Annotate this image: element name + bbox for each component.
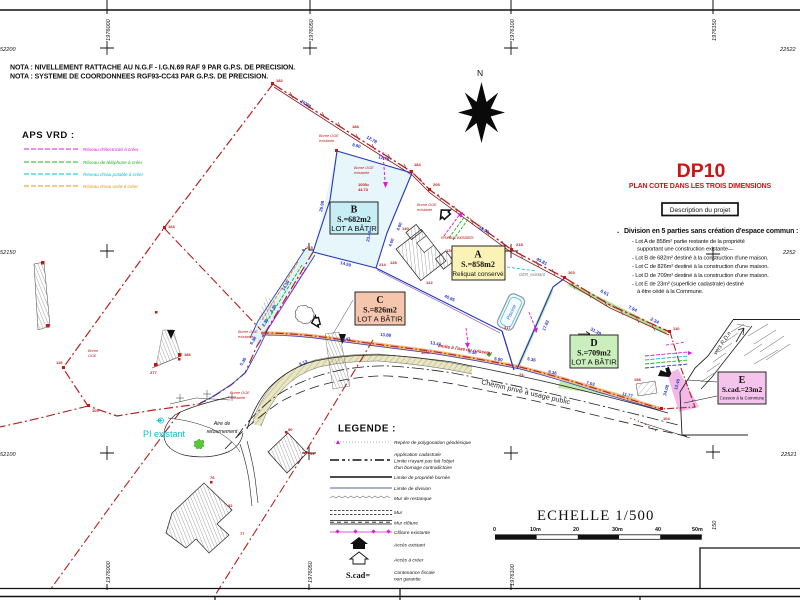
svg-text:Contenance fiscale: Contenance fiscale	[394, 570, 435, 576]
svg-text:1976000: 1976000	[106, 560, 112, 583]
svg-text:S.=858m2: S.=858m2	[461, 260, 495, 269]
svg-text:188: 188	[352, 124, 359, 129]
svg-text:existante: existante	[417, 208, 432, 212]
svg-text:Limite de propriété bornée: Limite de propriété bornée	[394, 475, 450, 481]
svg-text:93: 93	[310, 451, 315, 456]
svg-text:Application cadastrale: Application cadastrale	[393, 452, 441, 458]
svg-text:- Lot D de 709m² destiné à la: - Lot D de 709m² destiné à la constructi…	[632, 273, 769, 279]
svg-text:Accès existant: Accès existant	[393, 543, 426, 549]
svg-text:- Lot E de 23m² (superficie c: - Lot E de 23m² (superficie cadastrale) …	[632, 282, 744, 288]
svg-text:13.88: 13.88	[380, 332, 392, 338]
svg-text:à être cédé à la Commune.: à être cédé à la Commune.	[637, 289, 704, 295]
svg-text:Borne OGE: Borne OGE	[238, 330, 258, 334]
svg-text:115: 115	[56, 360, 63, 365]
svg-text:D: D	[590, 338, 597, 349]
svg-text:50m: 50m	[692, 527, 703, 533]
svg-text:OGE: OGE	[88, 354, 97, 358]
svg-text:Cession à la Commune: Cession à la Commune	[720, 396, 765, 401]
svg-text:Limite n'ayant pas fait l'obje: Limite n'ayant pas fait l'objet	[394, 459, 455, 465]
svg-text:140: 140	[402, 226, 409, 231]
svg-text:22522: 22522	[779, 47, 796, 53]
svg-text:Repère de polygonation géodési: Repère de polygonation géodésique	[394, 440, 471, 446]
svg-text:B: B	[351, 205, 358, 216]
svg-text:215: 215	[306, 245, 313, 250]
svg-text:DP10: DP10	[677, 160, 726, 182]
svg-text:103: 103	[568, 270, 575, 275]
svg-text:Réseau d'eau potable à créer: Réseau d'eau potable à créer	[83, 172, 144, 177]
svg-text:réseaux existants: réseaux existants	[441, 235, 474, 240]
svg-text:40: 40	[655, 527, 661, 533]
svg-text:Borne: Borne	[88, 349, 98, 353]
svg-text:20: 20	[573, 527, 579, 533]
svg-text:Réseau d'eau usée à créer: Réseau d'eau usée à créer	[83, 184, 138, 189]
svg-text:1976150: 1976150	[712, 18, 718, 41]
svg-text:existante: existante	[354, 171, 369, 175]
svg-text:Mur clôture: Mur clôture	[394, 521, 418, 527]
svg-text:52150: 52150	[0, 250, 16, 256]
svg-text:LOT A BÂTIR: LOT A BÂTIR	[571, 358, 617, 367]
svg-text:Division en 5 parties sans cré: Division en 5 parties sans création d'es…	[624, 228, 798, 235]
svg-text:N: N	[477, 68, 483, 78]
svg-text:Mur: Mur	[394, 510, 403, 516]
svg-text:d'un bornage contradictoire: d'un bornage contradictoire	[394, 465, 452, 471]
svg-text:C: C	[376, 295, 383, 306]
svg-text:- Lot C de 826m² destiné à la: - Lot C de 826m² destiné à la constructi…	[632, 264, 769, 270]
svg-text:- Lot A de 858m² partie restan: - Lot A de 858m² partie restante de la p…	[632, 239, 745, 245]
svg-text:205: 205	[433, 182, 440, 187]
svg-text:52200: 52200	[0, 47, 16, 53]
svg-text:PI existant: PI existant	[143, 429, 186, 439]
svg-text:Accès à créer: Accès à créer	[393, 558, 424, 564]
svg-text:182: 182	[276, 78, 283, 83]
svg-text:S.=709m2: S.=709m2	[577, 349, 611, 358]
svg-text:existante: existante	[319, 139, 334, 143]
svg-text:GER_existant: GER_existant	[519, 272, 546, 277]
svg-text:128: 128	[390, 260, 397, 265]
svg-text:184: 184	[414, 162, 421, 167]
svg-text:104: 104	[663, 416, 670, 421]
svg-text:Description du projet: Description du projet	[670, 207, 731, 214]
svg-text:NOTA : SYSTEME DE COORDONNEES: NOTA : SYSTEME DE COORDONNEES RGF93-CC43…	[10, 74, 268, 81]
svg-text:277: 277	[150, 370, 157, 375]
svg-text:PLAN COTE DANS LES TROIS DIMEN: PLAN COTE DANS LES TROIS DIMENSIONS	[629, 183, 772, 190]
svg-text:supportant une construction ex: supportant une construction existante—	[637, 247, 734, 253]
svg-text:150: 150	[712, 520, 718, 530]
svg-text:Borne OGE: Borne OGE	[230, 391, 250, 395]
svg-text:76: 76	[210, 475, 215, 480]
svg-text:Limite de division: Limite de division	[394, 486, 431, 492]
svg-text:90: 90	[288, 427, 293, 432]
svg-text:2252: 2252	[782, 250, 796, 256]
svg-text:ECHELLE 1/500: ECHELLE 1/500	[537, 508, 654, 524]
svg-text:LOT A BÂTIR: LOT A BÂTIR	[357, 315, 403, 324]
svg-text:A: A	[474, 250, 482, 261]
svg-text:1976100: 1976100	[510, 563, 516, 586]
svg-text:214: 214	[379, 262, 386, 267]
svg-text:110: 110	[673, 326, 680, 331]
svg-text:317: 317	[504, 325, 511, 330]
svg-text:1976100: 1976100	[510, 18, 516, 41]
svg-text:1976050: 1976050	[308, 560, 314, 583]
svg-text:10m: 10m	[530, 527, 541, 533]
svg-text:APS VRD :: APS VRD :	[22, 130, 75, 141]
svg-text:0: 0	[493, 527, 496, 533]
svg-text:1006: 1006	[421, 350, 431, 355]
svg-text:S.cad.=23m2: S.cad.=23m2	[722, 385, 763, 394]
svg-text:Mur de restanque: Mur de restanque	[394, 496, 432, 502]
svg-text:NOTA : NIVELLEMENT RATTACHE AU: NOTA : NIVELLEMENT RATTACHE AU N.G.F - I…	[10, 65, 295, 72]
svg-text:Borne OGE: Borne OGE	[417, 203, 437, 207]
svg-text:S.=826m2: S.=826m2	[363, 306, 397, 315]
svg-text:retournement: retournement	[207, 429, 238, 435]
svg-text:82: 82	[228, 503, 233, 508]
svg-text:1976050: 1976050	[309, 18, 315, 41]
svg-text:105: 105	[92, 408, 99, 413]
svg-text:Borne OGE: Borne OGE	[319, 134, 339, 138]
svg-text:218: 218	[516, 242, 523, 247]
svg-text:Borne OGE: Borne OGE	[354, 166, 374, 170]
svg-text:.: .	[617, 226, 619, 235]
svg-text:Clôture existante: Clôture existante	[394, 530, 430, 536]
svg-text:S.=682m2: S.=682m2	[337, 215, 371, 224]
svg-text:130: 130	[446, 248, 453, 253]
svg-text:30m: 30m	[612, 527, 623, 533]
svg-text:24.: 24.	[519, 372, 525, 377]
svg-text:158: 158	[634, 377, 641, 382]
svg-text:186: 186	[184, 352, 191, 357]
svg-text:Reliquat conservé: Reliquat conservé	[452, 271, 504, 278]
svg-text:Réseau de téléphone à créer: Réseau de téléphone à créer	[83, 160, 143, 165]
svg-text:122: 122	[426, 280, 433, 285]
svg-text:22521: 22521	[780, 452, 797, 458]
svg-text:non garantie: non garantie	[394, 577, 421, 583]
svg-text:77: 77	[240, 531, 245, 536]
svg-text:Aire de: Aire de	[213, 421, 231, 427]
svg-text:Réseau d'électricité à créer: Réseau d'électricité à créer	[83, 147, 139, 152]
svg-text:1976000: 1976000	[106, 18, 112, 41]
svg-text:44.73: 44.73	[358, 187, 369, 192]
svg-text:S.cad=: S.cad=	[346, 571, 370, 580]
svg-text:52100: 52100	[0, 452, 16, 458]
svg-text:LEGENDE :: LEGENDE :	[338, 424, 396, 435]
svg-text:163: 163	[168, 224, 175, 229]
svg-text:- Lot B de 682m² destiné à la: - Lot B de 682m² destiné à la constructi…	[632, 256, 769, 262]
svg-text:existante: existante	[230, 396, 245, 400]
